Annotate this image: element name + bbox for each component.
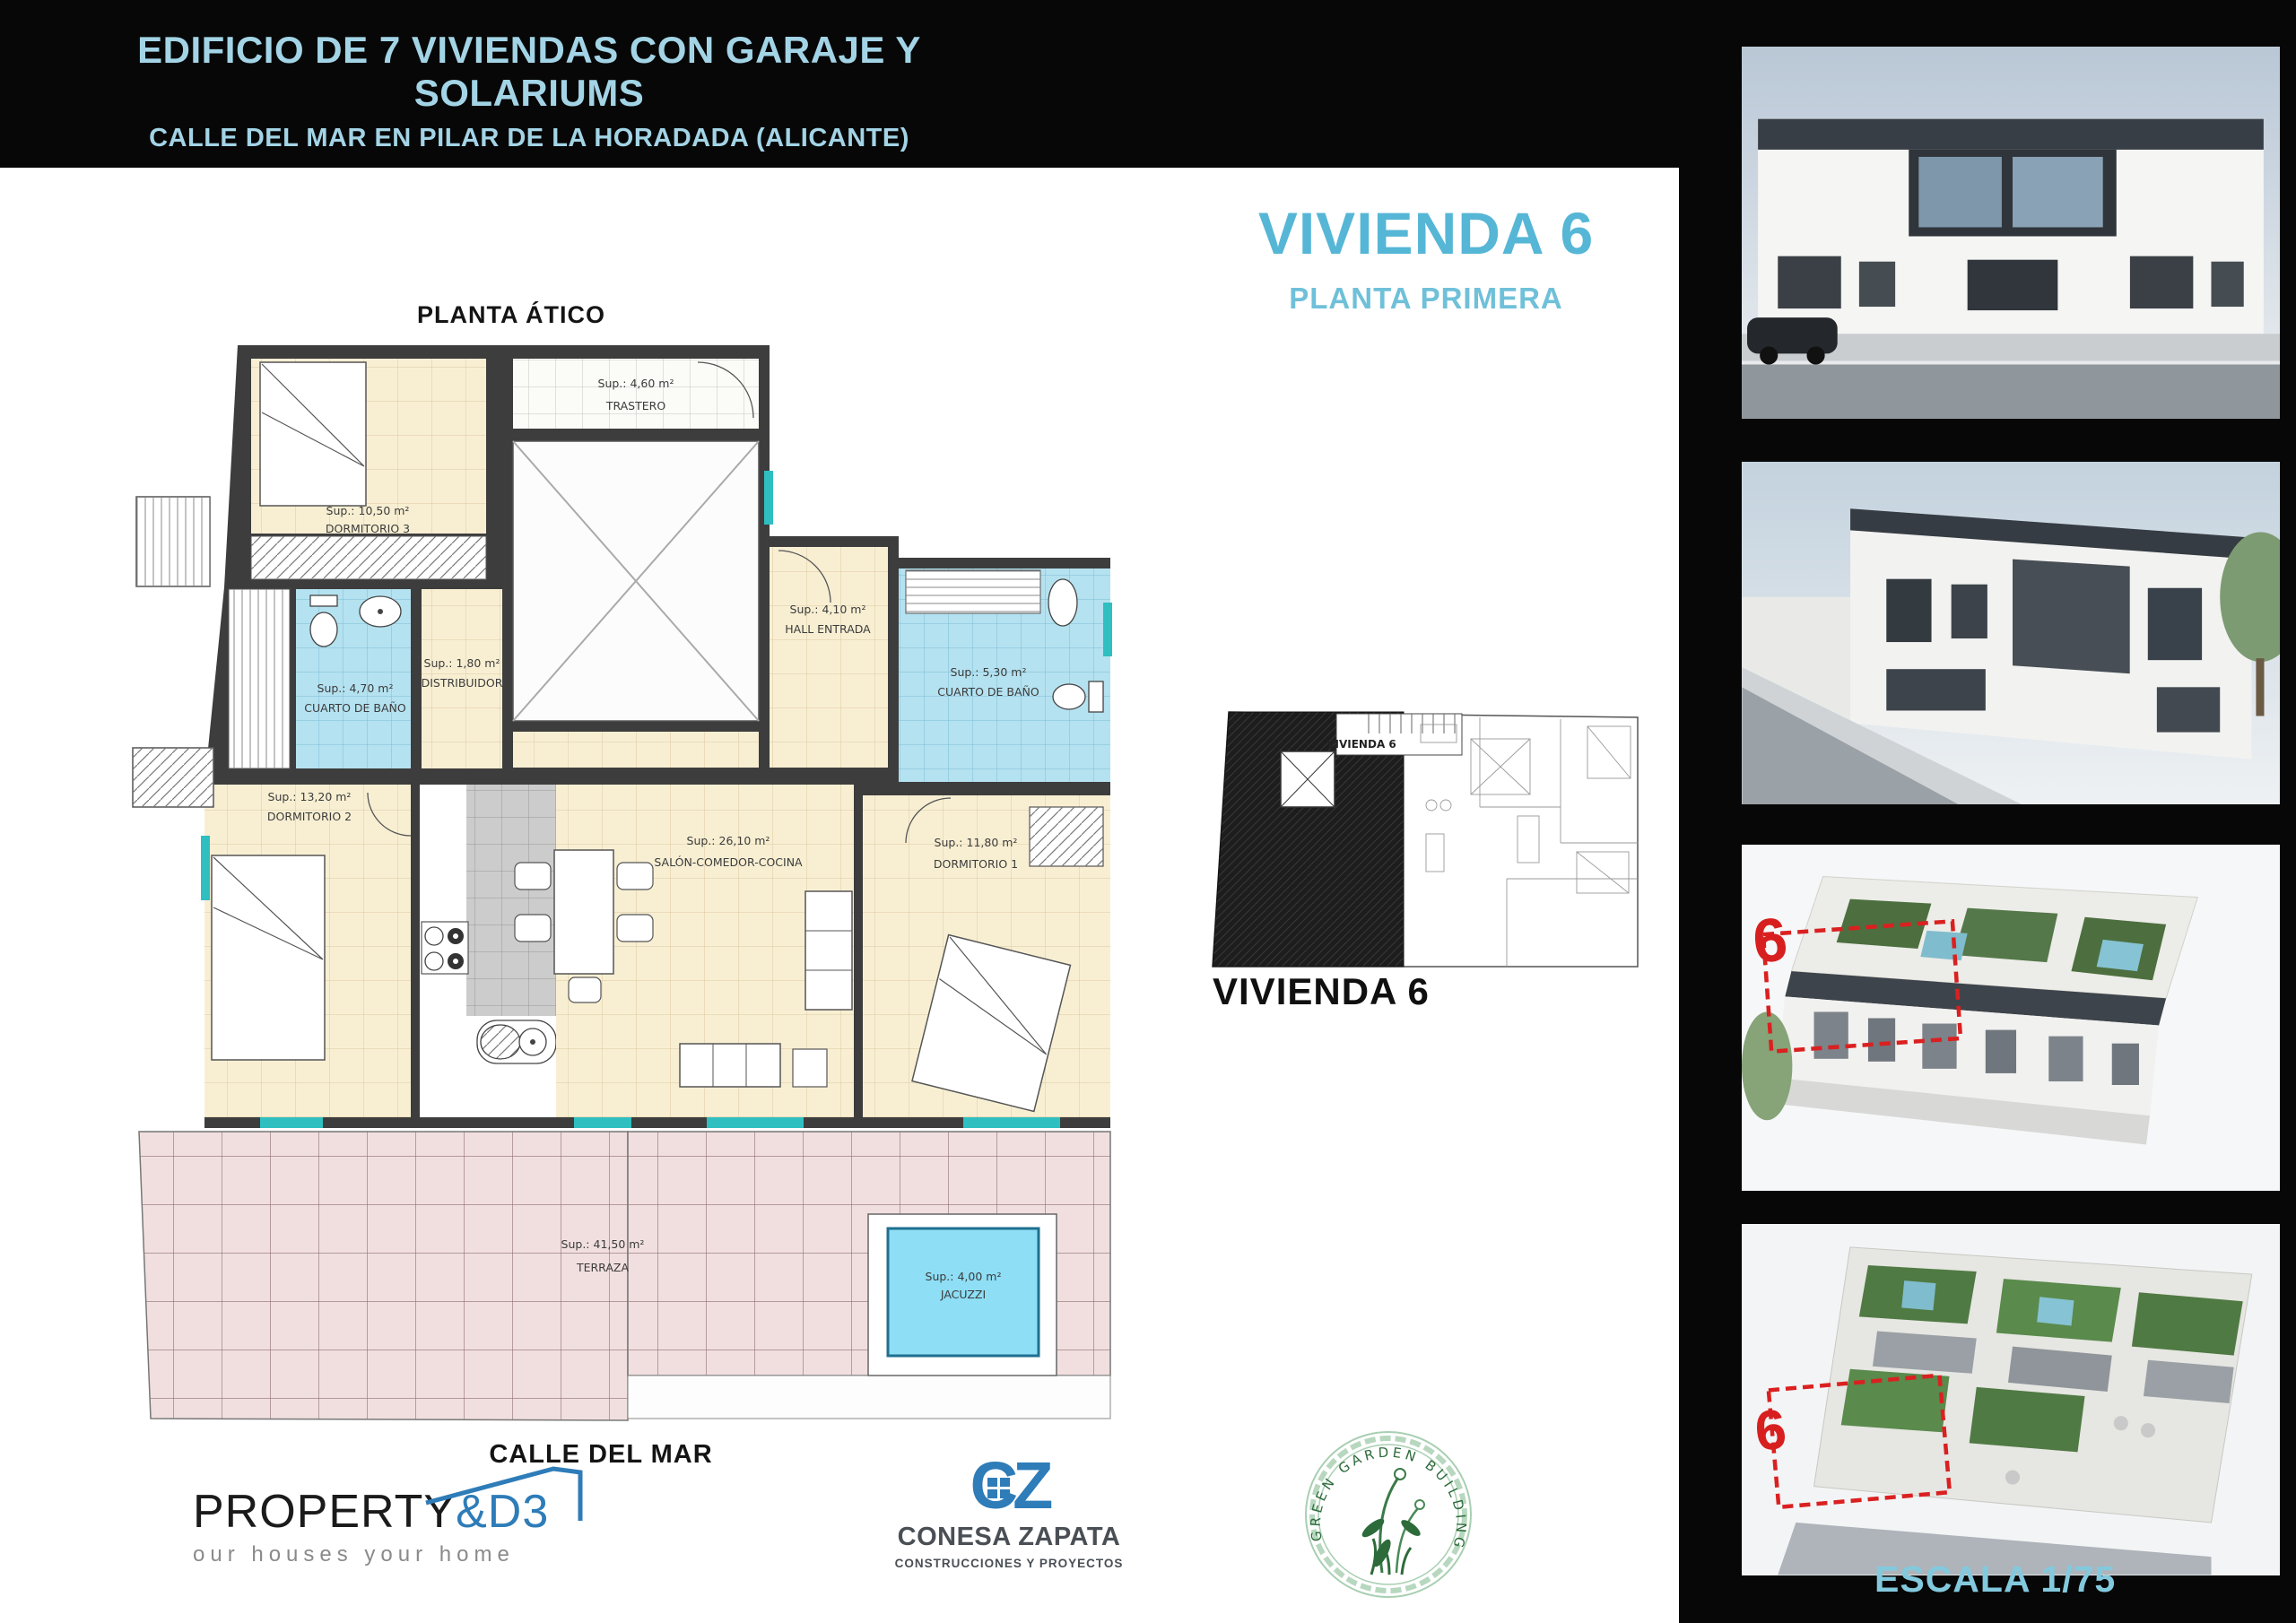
jacuzzi-name: JACUZZI — [940, 1288, 986, 1301]
property-d3-wordmark: PROPERTY&D3 — [193, 1485, 587, 1539]
plan-floor-label: PLANTA ÁTICO — [359, 301, 664, 329]
render-top-view: 6 — [1742, 1224, 2280, 1575]
kitchen — [420, 785, 556, 1117]
room-bano-izq: Sup.: 4,70 m² CUARTO DE BAÑO — [229, 589, 411, 768]
header-text: EDIFICIO DE 7 VIVIENDAS CON GARAJE Y SOL… — [63, 29, 996, 153]
unit-subtitle: PLANTA PRIMERA — [1193, 282, 1659, 316]
brochure-page: EDIFICIO DE 7 VIVIENDAS CON GARAJE Y SOL… — [0, 0, 2296, 1623]
conesa-name: CONESA ZAPATA — [883, 1523, 1135, 1552]
roof-icon — [422, 1462, 593, 1524]
render-street-view — [1742, 462, 2280, 804]
stamp-drawing: GREEN GARDEN BUILDING IV — [1296, 1422, 1481, 1607]
dormitorio3-name: DORMITORIO 3 — [326, 522, 410, 535]
plant-icon — [1360, 1469, 1424, 1575]
dormitorio1-name: DORMITORIO 1 — [934, 857, 1018, 871]
render-street-view-image — [1742, 462, 2280, 804]
bano-der-name: CUARTO DE BAÑO — [937, 685, 1039, 699]
property-d3-logo: PROPERTY&D3 our houses your home — [193, 1485, 587, 1567]
trastero-area: Sup.: 4,60 m² — [598, 377, 674, 390]
header-bar: EDIFICIO DE 7 VIVIENDAS CON GARAJE Y SOL… — [0, 0, 1679, 168]
floor-plan: Sup.: 41,50 m² TERRAZA Sup.: 4,00 m² JAC… — [126, 334, 1121, 1438]
room-dormitorio3: Sup.: 10,50 m² DORMITORIO 3 — [251, 359, 486, 579]
bano-der-area: Sup.: 5,30 m² — [951, 665, 1027, 679]
room-dormitorio2: Sup.: 13,20 m² DORMITORIO 2 — [204, 785, 411, 1117]
render-aerial-view: 6 — [1742, 845, 2280, 1191]
green-garden-stamp: GREEN GARDEN BUILDING IV — [1296, 1422, 1481, 1607]
render-aerial-view-image: 6 — [1742, 845, 2280, 1191]
key-plan-drawing: VIVIENDA 6 — [1202, 699, 1650, 985]
distribuidor-name: DISTRIBUIDOR — [422, 676, 503, 690]
unit-6-marker: 6 — [1750, 904, 1791, 976]
stamp-text: GREEN GARDEN BUILDING IV — [1296, 1422, 1469, 1553]
floor-plan-drawing: Sup.: 41,50 m² TERRAZA Sup.: 4,00 m² JAC… — [126, 334, 1121, 1438]
property-tagline: our houses your home — [193, 1542, 587, 1567]
room-bano-der: Sup.: 5,30 m² CUARTO DE BAÑO — [899, 568, 1110, 782]
unit-title-block: VIVIENDA 6 PLANTA PRIMERA — [1193, 199, 1659, 316]
conesa-tagline: CONSTRUCCIONES Y PROYECTOS — [883, 1557, 1135, 1570]
room-dormitorio1: Sup.: 11,80 m² DORMITORIO 1 — [863, 795, 1110, 1117]
distribuidor-area: Sup.: 1,80 m² — [424, 656, 500, 670]
dormitorio1-area: Sup.: 11,80 m² — [935, 836, 1018, 849]
render-front-elevation-image — [1742, 47, 2280, 419]
room-salon: Sup.: 26,10 m² SALÓN-COMEDOR-COCINA — [515, 785, 854, 1117]
stair-shaft — [513, 441, 759, 721]
room-distribuidor: Sup.: 1,80 m² DISTRIBUIDOR — [422, 589, 503, 768]
property-word: PROPERTY — [193, 1486, 456, 1538]
key-plan-mini-label: VIVIENDA 6 — [1326, 738, 1396, 751]
bano-izq-name: CUARTO DE BAÑO — [304, 701, 406, 715]
scale-label: ESCALA 1/75 — [1874, 1558, 2116, 1601]
page-title: EDIFICIO DE 7 VIVIENDAS CON GARAJE Y SOL… — [63, 29, 996, 115]
hall-area: Sup.: 4,10 m² — [790, 603, 866, 616]
hall-name: HALL ENTRADA — [785, 622, 871, 636]
jacuzzi-area: Sup.: 4,00 m² — [926, 1270, 1002, 1283]
render-front-elevation — [1742, 47, 2280, 419]
unit-6-marker: 6 — [1752, 1399, 1789, 1463]
unit-title: VIVIENDA 6 — [1193, 199, 1659, 267]
corridor — [513, 732, 759, 768]
terraza-area: Sup.: 41,50 m² — [561, 1237, 645, 1251]
terraza-name: TERRAZA — [576, 1261, 630, 1274]
svg-text:GREEN GARDEN BUILDING IV: GREEN GARDEN BUILDING IV — [1296, 1422, 1469, 1553]
window-icon — [987, 1478, 1011, 1499]
trastero-name: TRASTERO — [605, 399, 666, 412]
page-subtitle: CALLE DEL MAR EN PILAR DE LA HORADADA (A… — [63, 124, 996, 153]
room-trastero: Sup.: 4,60 m² TRASTERO — [513, 359, 759, 429]
dormitorio2-area: Sup.: 13,20 m² — [268, 790, 352, 803]
conesa-zapata-logo: CZ CONESA ZAPATA CONSTRUCCIONES Y PROYEC… — [883, 1454, 1135, 1570]
exterior-stairs — [133, 497, 213, 807]
room-hall: Sup.: 4,10 m² HALL ENTRADA — [770, 547, 888, 768]
key-plan-label: VIVIENDA 6 — [1213, 970, 1589, 1013]
render-top-view-image: 6 — [1742, 1224, 2280, 1575]
side-panel: 6 6 ES — [1679, 0, 2296, 1623]
key-plan: VIVIENDA 6 — [1202, 699, 1650, 985]
salon-area: Sup.: 26,10 m² — [687, 834, 770, 847]
bano-izq-area: Sup.: 4,70 m² — [317, 681, 394, 695]
cz-monogram-icon: CZ — [970, 1454, 1048, 1517]
salon-name: SALÓN-COMEDOR-COCINA — [654, 855, 803, 869]
dormitorio2-name: DORMITORIO 2 — [267, 810, 352, 823]
room-jacuzzi: Sup.: 4,00 m² JACUZZI — [868, 1214, 1057, 1376]
